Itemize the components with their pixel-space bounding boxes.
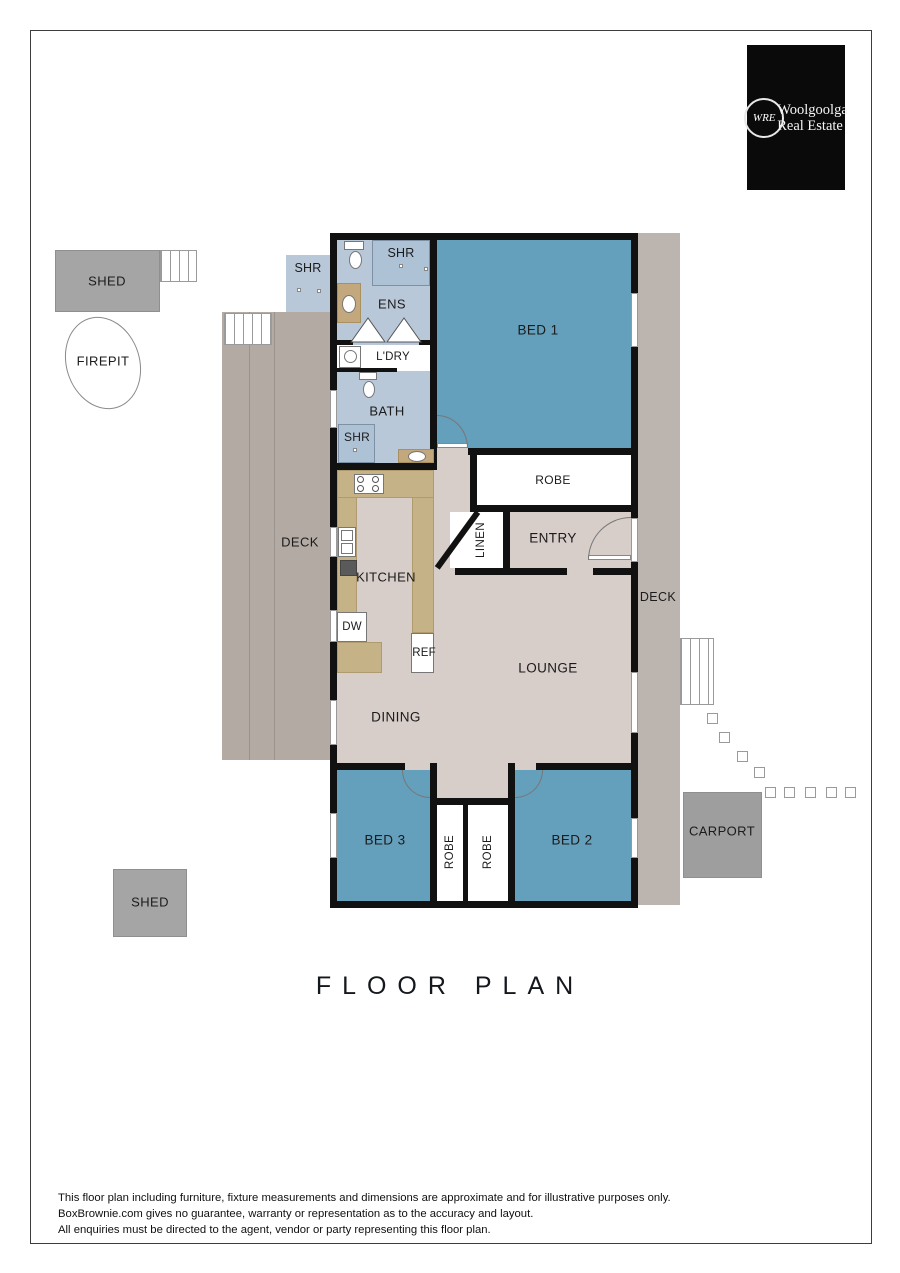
page-title: FLOOR PLAN	[0, 972, 900, 1001]
disclaimer-line2: BoxBrownie.com gives no guarantee, warra…	[58, 1206, 848, 1222]
linen-label: LINEN	[475, 522, 487, 558]
logo-lockup: WRE Woolgoolga Real Estate	[744, 98, 848, 138]
stepping-stone	[784, 787, 795, 798]
shed-top-steps	[160, 250, 197, 282]
wall-bed1-robe	[468, 448, 631, 455]
stepping-stone	[719, 732, 730, 743]
window-bed1	[631, 293, 638, 347]
wall-entry-lounge-b	[593, 568, 631, 575]
floor-plan-page: WRE Woolgoolga Real Estate SHED FIREPIT …	[0, 0, 900, 1273]
window-bath	[330, 390, 337, 428]
stepping-stone	[805, 787, 816, 798]
shower-head-dot	[399, 264, 403, 268]
wall-left	[330, 240, 337, 901]
bath-label: BATH	[369, 404, 404, 419]
robe-bed1-label: ROBE	[535, 473, 571, 487]
bed2-label: BED 2	[551, 833, 592, 848]
firepit-label: FIREPIT	[77, 354, 130, 369]
deck-right	[638, 233, 680, 905]
window-lounge	[631, 672, 638, 733]
window-kitchen-dw	[330, 610, 337, 642]
stove-burner	[372, 485, 379, 492]
stepping-stone	[754, 767, 765, 778]
bed1-label: BED 1	[517, 323, 558, 338]
outdoor-shower-label: SHR	[295, 261, 322, 275]
bed1-room	[437, 240, 631, 448]
shed-bottom-label: SHED	[131, 895, 169, 910]
kitchen-counter-right	[412, 497, 434, 633]
ens-label: ENS	[378, 297, 406, 312]
wall-bed2-top	[536, 763, 631, 770]
wall-hall-left	[430, 763, 437, 901]
stove-burner	[372, 476, 379, 483]
oven	[340, 560, 357, 576]
kitchen-sink-bowl	[341, 543, 353, 554]
shed-top-label: SHED	[88, 274, 126, 289]
bath-toilet-bowl	[363, 381, 375, 398]
bath-toilet-tank	[359, 372, 377, 380]
wall-robes-divider	[463, 805, 468, 901]
ens-toilet-tank	[344, 241, 364, 250]
wall-robes-top	[437, 798, 508, 805]
kitchen-counter-bottom	[337, 642, 382, 673]
entry-label: ENTRY	[529, 531, 577, 546]
stove-burner	[357, 476, 364, 483]
ref-label: REF	[412, 647, 436, 659]
window-dining	[330, 700, 337, 745]
window-bed3	[330, 813, 337, 858]
wall-robe-left	[470, 448, 477, 512]
wall-bath-kitchen	[337, 463, 437, 470]
shower-drain-dot	[424, 267, 428, 271]
kitchen-sink-bowl	[341, 530, 353, 541]
dw-label: DW	[342, 621, 362, 633]
disclaimer-text: This floor plan including furniture, fix…	[58, 1190, 848, 1238]
shower-head-dot	[353, 448, 357, 452]
deck-right-label: DECK	[640, 590, 676, 604]
washing-machine-drum	[344, 350, 357, 363]
wall-entry-lounge-a	[455, 568, 567, 575]
logo-name-line2: Real Estate	[777, 118, 848, 134]
wall-linen-entry	[503, 512, 510, 568]
lounge-label: LOUNGE	[518, 661, 577, 676]
agency-logo: WRE Woolgoolga Real Estate	[747, 45, 845, 190]
robe-bed2-label: ROBE	[482, 835, 494, 869]
disclaimer-line3: All enquiries must be directed to the ag…	[58, 1222, 848, 1238]
ldry-label: L'DRY	[376, 351, 410, 363]
carport-label: CARPORT	[689, 824, 755, 839]
stepping-stone	[765, 787, 776, 798]
stepping-stone	[737, 751, 748, 762]
deck-left-label: DECK	[281, 535, 319, 550]
wall-bottom	[330, 901, 638, 908]
shower-drain-dot	[317, 289, 321, 293]
bed3-label: BED 3	[364, 833, 405, 848]
stove-burner	[357, 485, 364, 492]
logo-name-line1: Woolgoolga	[777, 102, 848, 118]
logo-wordmark: Woolgoolga Real Estate	[777, 102, 848, 134]
shower-head-dot	[297, 288, 301, 292]
wall-hall-right	[508, 763, 515, 901]
robe-bed3-label: ROBE	[444, 835, 456, 869]
deck-left-steps	[224, 313, 272, 345]
window-bed2	[631, 818, 638, 858]
bath-basin	[408, 451, 426, 462]
kitchen-counter-top	[337, 470, 434, 498]
logo-monogram: WRE	[753, 112, 776, 124]
stepping-stone	[845, 787, 856, 798]
wall-ens-bed1	[430, 240, 437, 470]
deck-right-steps	[680, 638, 714, 705]
kitchen-label: KITCHEN	[356, 570, 416, 585]
deck-plank-line	[274, 312, 275, 760]
stepping-stone	[707, 713, 718, 724]
stepping-stone	[826, 787, 837, 798]
wall-top	[330, 233, 638, 240]
entry-door-gap	[631, 518, 638, 562]
dining-label: DINING	[371, 710, 421, 725]
window-kitchen-sink	[330, 527, 337, 557]
ens-toilet-bowl	[349, 251, 362, 269]
bath-shr-label: SHR	[344, 430, 370, 444]
disclaimer-line1: This floor plan including furniture, fix…	[58, 1190, 848, 1206]
wall-bed3-top	[330, 763, 405, 770]
wall-robe-bottom	[470, 505, 631, 512]
ens-basin	[342, 295, 356, 313]
ens-shr-label: SHR	[388, 246, 415, 260]
deck-plank-line	[249, 312, 250, 760]
